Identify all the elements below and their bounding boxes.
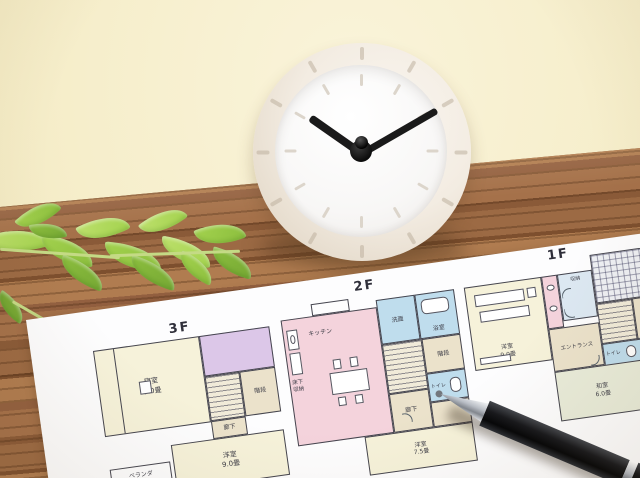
clock-tick <box>294 111 306 120</box>
room-label: 階段 <box>437 349 450 358</box>
room-label: エントランス <box>560 341 594 353</box>
floorplan-3f: 3F 寝室 9.0畳 階段 廊下 洋室 9.0畳 <box>90 308 290 478</box>
room-western-3f: 洋室 9.0畳 <box>171 429 290 478</box>
photo-scene: 3F 寝室 9.0畳 階段 廊下 洋室 9.0畳 <box>0 0 640 478</box>
entrance-porch-tile <box>590 245 640 303</box>
clock-tick <box>360 47 364 60</box>
door-arc-icon <box>396 412 414 430</box>
clock-tick <box>392 207 401 219</box>
fixture-icon <box>549 305 558 312</box>
side-table-icon <box>527 287 537 298</box>
stairs-icon <box>382 339 429 394</box>
clock-tick <box>417 182 429 191</box>
clock-tick <box>294 182 306 191</box>
dining-table-icon <box>329 368 370 395</box>
room-label: 洗面 <box>391 315 404 324</box>
bathtub-icon <box>420 297 449 315</box>
clock-tick <box>257 150 270 154</box>
door-arc-icon <box>561 287 579 305</box>
toilet-icon <box>625 344 637 358</box>
chair-icon <box>337 396 347 407</box>
sofa-icon <box>479 305 531 323</box>
wall-line <box>113 349 126 433</box>
room-label: 階段 <box>254 386 267 395</box>
kitchen-counter-icon <box>289 352 303 376</box>
room-veranda: ベランダ <box>110 461 173 478</box>
sofa-icon <box>474 289 526 307</box>
room-label: 廊下 <box>223 423 236 432</box>
stairs-icon <box>204 371 246 421</box>
clock-center-cap <box>355 136 368 149</box>
room-washroom-2f: 洗面 <box>375 295 420 344</box>
room-bath: 浴室 <box>414 289 460 339</box>
clock-tick <box>360 74 363 86</box>
door-arc-icon <box>583 348 601 366</box>
room-label: 浴室 <box>433 324 446 333</box>
stairs-icon <box>597 299 638 344</box>
clock-tick <box>321 84 330 96</box>
room-stairs-label: 階段 <box>422 334 465 375</box>
clock-tick <box>426 150 438 153</box>
room-label: 洋室 7.5畳 <box>412 440 430 458</box>
room-label: トイレ <box>606 350 622 359</box>
room-label: 床下 収納 <box>292 379 305 395</box>
fixture-icon <box>546 285 555 292</box>
chair-icon <box>332 359 342 370</box>
room-label: 収納 <box>570 275 581 283</box>
room-stairs-label: 階段 <box>240 366 282 416</box>
clock-tick <box>360 216 363 228</box>
room-hallway-2f: 廊下 <box>389 388 435 432</box>
room-ldk: キッチン 床下 収納 <box>281 308 394 447</box>
clock-tick <box>455 150 468 154</box>
floorplan-2f: 2F キッチン 床下 収納 洗面 <box>276 266 478 478</box>
chair-icon <box>349 356 359 367</box>
pen-tip-ball <box>435 389 444 398</box>
clock-tick <box>284 150 296 153</box>
clock-tick <box>392 84 401 96</box>
door-arc-icon <box>563 301 581 319</box>
room-label: ベランダ <box>129 470 154 478</box>
room-label: 和室 6.0畳 <box>594 382 612 400</box>
room-entrance: エントランス <box>549 322 605 372</box>
chair-icon <box>354 393 364 404</box>
room-label: 洋室 9.0畳 <box>220 449 240 470</box>
clock-tick <box>360 245 364 258</box>
room-label: キッチン <box>308 327 333 338</box>
clock-tick <box>321 207 330 219</box>
room-bedroom: 寝室 9.0畳 <box>93 336 211 437</box>
closet-icon <box>138 380 152 395</box>
